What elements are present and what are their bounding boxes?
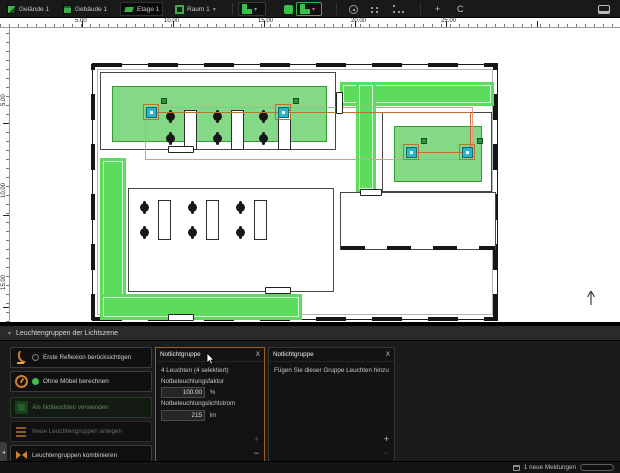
selection-link-line (151, 112, 470, 113)
luminaire-count-text: 4 Leuchten (4 selektiert) (161, 366, 259, 377)
target-snap-button[interactable] (346, 2, 361, 16)
scene-icon (242, 4, 252, 14)
ruler-label: 15.00 (1, 272, 7, 290)
use-as-emergency-button: Als Notleuchten verwenden (10, 397, 152, 418)
button-label: Neue Leuchtengruppen anlegen (32, 428, 122, 435)
luminaire-icon (146, 107, 157, 118)
luminaire-icon (278, 107, 289, 118)
luminaire-marker[interactable] (421, 138, 427, 144)
group-title: Notlichtgruppe (160, 351, 201, 358)
mouse-cursor (206, 352, 215, 365)
without-furniture-button[interactable]: Ohne Möbel berechnen (10, 371, 152, 392)
door[interactable] (336, 92, 343, 114)
chair[interactable] (188, 228, 197, 237)
ruler-label: 5.00 (1, 88, 7, 106)
luminaire-icon (406, 147, 417, 158)
floor-icon (123, 6, 135, 13)
factor-label: Notbeleuchtungsfaktor (161, 377, 259, 388)
emergency-luminaire-selected[interactable] (275, 104, 291, 120)
chevron-down-icon: ▾ (254, 6, 257, 13)
emergency-luminaire-selected[interactable] (143, 104, 159, 120)
toolbar-room-button[interactable]: Raum 1 ▾ (172, 2, 219, 16)
new-group-icon (15, 425, 28, 438)
toolbar-building-button[interactable]: Gebäude 1 (60, 2, 110, 16)
messages-icon (513, 465, 520, 471)
door[interactable] (168, 314, 194, 321)
door[interactable] (168, 146, 194, 153)
wall-hatch-room-bottom (341, 246, 495, 250)
empty-group-hint: Fügen Sie dieser Gruppe Leuchten hinzu (274, 366, 389, 377)
luminaire-marker[interactable] (293, 98, 299, 104)
panel-title: Leuchtengruppen der Lichtszene (16, 330, 118, 337)
radio-on-icon (32, 378, 39, 385)
fill-tool-icon (284, 5, 293, 14)
ruler-horizontal: 5.00 10.00 15.00 20.00 25.00 (0, 18, 620, 28)
room-bottom-right[interactable] (340, 192, 496, 250)
emergency-flux-input[interactable] (161, 410, 205, 421)
fill-tool-button[interactable] (281, 2, 296, 16)
room-label: Raum 1 (187, 6, 210, 13)
luminaire-marker[interactable] (161, 98, 167, 104)
flux-unit: lm (210, 412, 217, 419)
app-window: Gelände 1 Gebäude 1 Etage 1 Raum 1 ▾ ▾ ▾ (0, 0, 620, 473)
radio-off-icon (32, 354, 39, 361)
room-icon (175, 5, 184, 14)
desk[interactable] (206, 200, 219, 240)
close-icon[interactable]: X (386, 351, 390, 358)
desk[interactable] (254, 200, 267, 240)
new-luminaire-group-button: Neue Leuchtengruppen anlegen (10, 421, 152, 442)
messages-text: 1 neue Meldungen (524, 464, 576, 471)
luminaire-icon (462, 147, 473, 158)
panel-collapse-tab[interactable]: ◂ (0, 442, 7, 462)
add-luminaire-button[interactable]: + (384, 435, 389, 444)
emergency-luminaire-selected[interactable] (403, 144, 419, 160)
door[interactable] (360, 189, 382, 196)
ruler-label: 5.00 (75, 18, 87, 24)
north-arrow-icon (585, 288, 597, 306)
door[interactable] (265, 287, 291, 294)
chair[interactable] (140, 203, 149, 212)
top-toolbar: Gelände 1 Gebäude 1 Etage 1 Raum 1 ▾ ▾ ▾ (0, 0, 620, 18)
ruler-label: 20.00 (351, 18, 366, 24)
drawing-canvas[interactable] (10, 28, 620, 322)
close-icon[interactable]: X (256, 351, 260, 358)
toolbar-separator (336, 3, 337, 15)
floor-label: Etage 1 (137, 6, 159, 13)
ruler-label: 25.00 (441, 18, 456, 24)
panel-header[interactable]: ▾ Leuchtengruppen der Lichtszene (0, 326, 620, 341)
rotate-icon: C (457, 2, 464, 16)
chevron-down-icon: ▾ (312, 6, 315, 13)
first-reflection-button[interactable]: Erste Reflexion berücksichtigen (10, 347, 152, 368)
toolbar-separator (420, 3, 421, 15)
status-bar: 1 neue Meldungen (0, 461, 620, 473)
flux-label: Notbeleuchtungslichtstrom (161, 399, 259, 410)
emergency-light-icon (15, 401, 28, 414)
snap-points-button[interactable] (368, 2, 385, 16)
collapse-left-icon: ◂ (2, 449, 5, 456)
remove-luminaire-button: − (384, 449, 389, 458)
ruler-label: 15.00 (258, 18, 273, 24)
ruler-label: 10.00 (164, 18, 179, 24)
building-label: Gebäude 1 (75, 6, 107, 13)
button-label: Ohne Möbel berechnen (43, 378, 109, 385)
corridor-zone-bottom[interactable] (100, 294, 302, 320)
terrain-label: Gelände 1 (19, 6, 49, 13)
button-label: Leuchtengruppen kombinieren (32, 452, 117, 459)
move-tool-button[interactable]: + (432, 2, 443, 16)
desk[interactable] (158, 200, 171, 240)
snap-points-icon (371, 5, 382, 14)
chair[interactable] (236, 203, 245, 212)
polygon-tool-icon (300, 4, 310, 14)
chair[interactable] (140, 228, 149, 237)
group-title: Notlichtgruppe (273, 351, 314, 358)
emergency-factor-input[interactable] (161, 387, 205, 398)
snap-lines-icon (393, 5, 404, 14)
emergency-luminaire-selected[interactable] (459, 144, 475, 160)
factor-unit: % (210, 389, 216, 396)
polygon-tool-button[interactable]: ▾ (296, 2, 322, 16)
luminaire-marker[interactable] (477, 138, 483, 144)
monitor-icon (598, 5, 610, 14)
add-luminaire-button: + (254, 435, 259, 444)
display-settings-button[interactable] (595, 2, 613, 16)
chevron-down-icon: ▾ (213, 6, 216, 13)
button-label: Als Notleuchten verwenden (32, 404, 109, 411)
no-furniture-icon (15, 375, 28, 388)
target-icon (349, 5, 358, 14)
ruler-major-ticks (82, 21, 547, 27)
remove-luminaire-button[interactable]: − (254, 449, 259, 458)
wall-hatch-left (91, 64, 95, 320)
move-icon: + (435, 2, 440, 16)
chair[interactable] (236, 228, 245, 237)
snap-lines-button[interactable] (390, 2, 407, 16)
toolbar-floor-button[interactable]: Etage 1 (120, 2, 163, 16)
chair[interactable] (188, 203, 197, 212)
building-icon (63, 5, 72, 14)
toolbar-separator (232, 3, 233, 15)
emergency-group-panel-2: Notlichtgruppe X Fügen Sie dieser Gruppe… (268, 347, 395, 463)
light-scene-panel: ▾ Leuchtengruppen der Lichtszene Erste R… (0, 326, 620, 473)
toolbar-terrain-button[interactable]: Gelände 1 (4, 2, 52, 16)
scene-select-button[interactable]: ▾ (238, 2, 266, 16)
button-label: Erste Reflexion berücksichtigen (43, 354, 131, 361)
ruler-label: 10.00 (1, 180, 7, 198)
terrain-icon (7, 5, 16, 14)
rotate-tool-button[interactable]: C (454, 2, 467, 16)
wall-hatch-top (92, 63, 498, 67)
reflection-lamp-icon (15, 351, 28, 364)
ruler-vertical: 5.00 10.00 15.00 (0, 28, 10, 322)
progress-pill[interactable] (580, 464, 614, 471)
collapse-caret-icon: ▾ (8, 330, 11, 337)
